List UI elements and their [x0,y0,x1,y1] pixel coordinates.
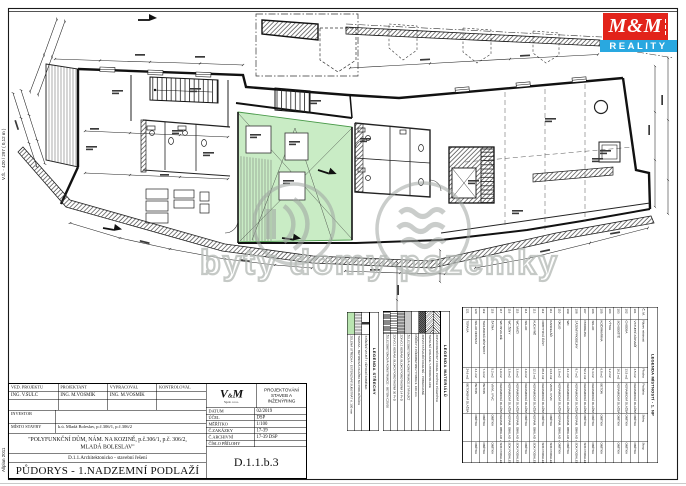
firm-logo: V&M Spol. s r.o. [207,384,258,408]
table-row: 110 ÚKLID 1.8 m2 KERAMICKÁ DLAŽBA KERAM.… [555,308,563,463]
legend-swatch [362,313,369,335]
legend-swatch [412,312,419,334]
legend-swatch [405,312,412,334]
role-value: ING. M.VOSMÍK [58,392,107,400]
mm-logo-side-mark [665,25,667,29]
table-row: 104 VÝTAH 3.2 m2 [605,308,613,463]
meta-value: 02/2019 [255,408,307,414]
rooms-table-header: Č. M. Název místnosti Plocha Podlaha Stě… [639,308,648,463]
table-row: 111 KANCELÁŘ 14.6 m2 VINYL / PVC OMÍTKA … [546,308,554,463]
legend-label: TERASA - BETONOVÁ DLAŽBA NA PODLOŽKÁCH [355,335,362,431]
legend-item: ŽELEZOBETONOVÁ KONSTRUKCE STÁVAJÍCÍ [405,312,412,431]
role-label: VYPRACOVAL [108,384,157,392]
terrace-hatch [46,64,78,167]
legend-item: PŘÍČKY Z PÓROBETONU YTONG tl. 100 mm [412,312,419,431]
table-row: 117 WC INVALIDÉ 3.9 m2 KERAMICKÁ DLAŽBA … [496,308,504,463]
legend-materials: LEGENDA MATERIÁLŮ ŽELEZOBETONOVÁ KONSTRU… [383,311,450,431]
legend-item: ZDIVO Z KERAM. BLOKŮ POROTHERM 30 P+D [391,312,398,431]
legend-label: ZELENÁ STŘECHA - EXTENZIVNÍ SUBSTRÁT tl.… [348,335,355,431]
staircases [150,77,310,113]
legend-item: ZDIVO STÁVAJÍCÍ CIHELNÉ - PONECHANÉ [419,312,426,431]
building-name: "POLYFUNKČNÍ DŮM, NÁM. NA KOZINĚ, p.č.30… [9,434,206,454]
mm-logo-side-mark [665,31,667,35]
role-cell: VYPRACOVAL ING. M.VOSMÍK [108,384,157,410]
legend-item: ZELENÁ STŘECHA - EXTENZIVNÍ SUBSTRÁT tl.… [348,313,355,431]
roles-row: VED. PROJEKTU ING. V.ŠULC PROJEKTANT ING… [9,384,206,411]
site-value: k.ú. Mladá Boleslav, p.č.306/1, p.č.306/… [56,424,206,434]
legend-label: ZDIVO DOZDÍVKY Z CIHEL PLNÝCH PÁLENÝCH [433,334,440,431]
col-header: Č. M. [639,308,648,320]
table-row: 116 WC ŽENY 3.8 m2 KERAMICKÁ DLAŽBA KERA… [504,308,512,463]
legend-item: TEPELNÁ IZOLACE / HYDROIZOLACE [426,312,433,431]
legend-swatch [355,313,362,335]
firm-sub: Spol. s r.o. [224,400,239,404]
table-row: 113 KUCHYNĚ 12.3 m2 KERAMICKÁ DLAŽBA KER… [530,308,538,463]
table-row: 102 CHODBA 13.5 m2 KERAMICKÁ DLAŽBA OMÍT… [622,308,630,463]
drawing-number: D.1.1.b.3 [207,447,307,478]
investor-row: INVESTOR [9,411,206,424]
role-label: KONTROLOVAL [157,384,206,392]
legend-item: ZDIVO Z KERAM. BLOKŮ POROTHERM 14 P+D [398,312,405,431]
investor-value [56,411,206,424]
meta-value: 17-39 DSP [255,434,307,440]
screenshot-bottom-edge [0,483,686,484]
meta-value: DSP [255,415,307,421]
firm-description: PROJEKTOVÁNÍ STAVEB A INŽENÝRING [257,384,306,408]
meta-label: Č.ARCHIVNÍ [207,434,255,440]
legend-swatch [398,312,405,334]
table-row: 118 ŠATNA 5.2 m2 VINYL / PVC OMÍTKA OMÍT… [488,308,496,463]
legend-label: ZDIVO STÁVAJÍCÍ CIHELNÉ - PONECHANÉ [419,334,426,431]
title-block: VED. PROJEKTU ING. V.ŠULC PROJEKTANT ING… [8,383,307,479]
legend-roof-title: LEGENDA STŘECHY [370,313,379,431]
title-block-right: V&M Spol. s r.o. PROJEKTOVÁNÍ STAVEB A I… [207,384,307,478]
rooms-table-body: 101 VSTUPNÍ ZÁDVEŘÍ 4.5 m2 KERAMICKÁ DLA… [463,308,639,463]
table-row: 101 VSTUPNÍ ZÁDVEŘÍ 4.5 m2 KERAMICKÁ DLA… [630,308,638,463]
margin-size-note: V.Š. - 420 / 297 ( 0,12 m ) [1,105,7,180]
role-cell: KONTROLOVAL [157,384,206,410]
legend-swatch [426,312,433,334]
legend-materials-items: ŽELEZOBETONOVÁ KONSTRUKCE - BETON C25/30… [384,312,441,431]
role-value [157,392,206,400]
legend-label: PŘÍČKY Z PÓROBETONU YTONG tl. 100 mm [412,334,419,431]
drawing-title: PŮDORYS - 1.NADZEMNÍ PODLAŽÍ [9,463,206,479]
rooms-legend-table: LEGENDA MÍSTNOSTÍ - 1. NP Č. M. Název mí… [462,307,658,463]
role-cell: VED. PROJEKTU ING. V.ŠULC [9,384,58,410]
table-row: 115 WC MUŽI 3.6 m2 KERAMICKÁ DLAŽBA KERA… [513,308,521,463]
title-block-left: VED. PROJEKTU ING. V.ŠULC PROJEKTANT ING… [9,384,207,478]
col-header: Název místnosti [639,320,648,368]
col-header: Podlaha [639,383,648,414]
meta-value [255,441,307,447]
site-row: MÍSTO STAVBY k.ú. Mladá Boleslav, p.č.30… [9,424,206,434]
legend-swatch [348,313,355,335]
table-row: 109 WC 2.1 m2 KERAMICKÁ DLAŽBA KERAM. OB… [563,308,571,463]
role-value: ING. V.ŠULC [9,392,58,400]
drawing-sheet: byty domy pozemky M&M REALITY V.Š. - 420… [0,0,686,486]
role-label: PROJEKTANT [58,384,107,392]
meta-label: Č.ZAKÁZKY [207,428,255,434]
legend-item: TERASA - BETONOVÁ DLAŽBA NA PODLOŽKÁCH [355,313,362,431]
investor-label: INVESTOR [9,411,56,424]
section-name: D.1.1.Architektonicko - stavební řešení [9,454,206,463]
watermark-text: byty domy pozemky [200,244,559,283]
legend-item: ZDIVO DOZDÍVKY Z CIHEL PLNÝCH PÁLENÝCH [433,312,440,431]
table-row: 107 PRODEJNA 52.3 m2 KERAMICKÁ DLAŽBA OM… [580,308,588,463]
table-row: 108 ZÁZEMÍ PRODEJNY 8.7 m2 KERAMICKÁ DLA… [571,308,579,463]
meta-value: 17-39 [255,428,307,434]
mm-logo-text: M&M [608,15,662,38]
legend-item: ŽELEZOBETONOVÁ KONSTRUKCE - BETON C25/30 [384,312,391,431]
mm-logo-blue-bar: REALITY [600,40,677,52]
legend-label: ŽELEZOBETONOVÁ KONSTRUKCE - BETON C25/30 [384,334,391,431]
margin-cad-note: Allplan 2011 [1,425,7,472]
table-row: 106 SKLAD 5.4 m2 KERAMICKÁ DLAŽBA OMÍTKA… [588,308,596,463]
mm-reality-logo: M&M REALITY [600,13,677,52]
meta-label: ÚČEL [207,415,255,421]
meta-label: MĚŘÍTKO [207,421,255,427]
skylight-box [285,133,308,160]
role-value: ING. M.VOSMÍK [108,392,157,400]
col-header: Strop [639,442,648,463]
legend-swatch [433,312,440,334]
legend-label: ŽELEZOBETONOVÁ KONSTRUKCE STÁVAJÍCÍ [405,334,412,431]
mm-reality-text: REALITY [609,41,667,52]
meta-label: ČÍSLO PŘÍLOHY [207,441,255,447]
legend-roof: LEGENDA STŘECHY ZELENÁ STŘECHA - EXTENZI… [347,312,379,431]
legend-label: ZDIVO Z KERAM. BLOKŮ POROTHERM 30 P+D [391,334,398,431]
firm-row: V&M Spol. s r.o. PROJEKTOVÁNÍ STAVEB A I… [207,384,307,408]
col-header: Stěny [639,414,648,442]
legend-materials-title: LEGENDA MATERIÁLŮ [441,312,450,431]
legend-label: ZDIVO Z KERAM. BLOKŮ POROTHERM 14 P+D [398,334,405,431]
mm-logo-side-mark [665,19,667,23]
table-row: 119 TECHNICKÁ MÍSTNOST 7.4 m2 BETON OMÍT… [479,308,487,463]
meta-rows: DATUM 02/2019 ÚČEL DSP MĚŘÍTKO 1/100 Č.Z… [207,408,307,447]
table-row: 105 KOČÁRKÁRNA 6.8 m2 BETON OMÍTKA OMÍTK… [597,308,605,463]
site-label: MÍSTO STAVBY [9,424,56,434]
legend-swatch [419,312,426,334]
col-header: Plocha [639,368,648,383]
legend-swatch [384,312,391,334]
neighbour-building-outline [256,14,358,76]
mm-logo-red-box: M&M [603,13,668,40]
role-cell: PROJEKTANT ING. M.VOSMÍK [58,384,107,410]
legend-swatch [391,312,398,334]
table-row: 120 SKLAD ODPADU 4.1 m2 BETON OMÍTKA OMÍ… [471,308,479,463]
table-row: 114 SKLAD 4.9 m2 KERAMICKÁ DLAŽBA OMÍTKA… [521,308,529,463]
legend-label: STŘEŠNÍ VPUSŤ / VĚTRACÍ KOMÍNEK [362,335,369,431]
skylight-box [246,126,271,153]
table-row: 112 ODBYTOVÁ ČÁST 68.4 m2 KERAMICKÁ DLAŽ… [538,308,546,463]
meta-label: DATUM [207,408,255,414]
table-row: 121 TERASA 24.6 m2 BETONOVÁ DLAŽBA [462,308,470,463]
rooms-table-title: LEGENDA MÍSTNOSTÍ - 1. NP [648,308,658,463]
legend-label: TEPELNÁ IZOLACE / HYDROIZOLACE [426,334,433,431]
legend-roof-items: ZELENÁ STŘECHA - EXTENZIVNÍ SUBSTRÁT tl.… [348,313,370,431]
role-label: VED. PROJEKTU [9,384,58,392]
table-row: 103 SCHODIŠTĚ 16.2 m2 KERAMICKÁ DLAŽBA O… [613,308,621,463]
legend-item: STŘEŠNÍ VPUSŤ / VĚTRACÍ KOMÍNEK [362,313,369,431]
meta-value: 1/100 [255,421,307,427]
